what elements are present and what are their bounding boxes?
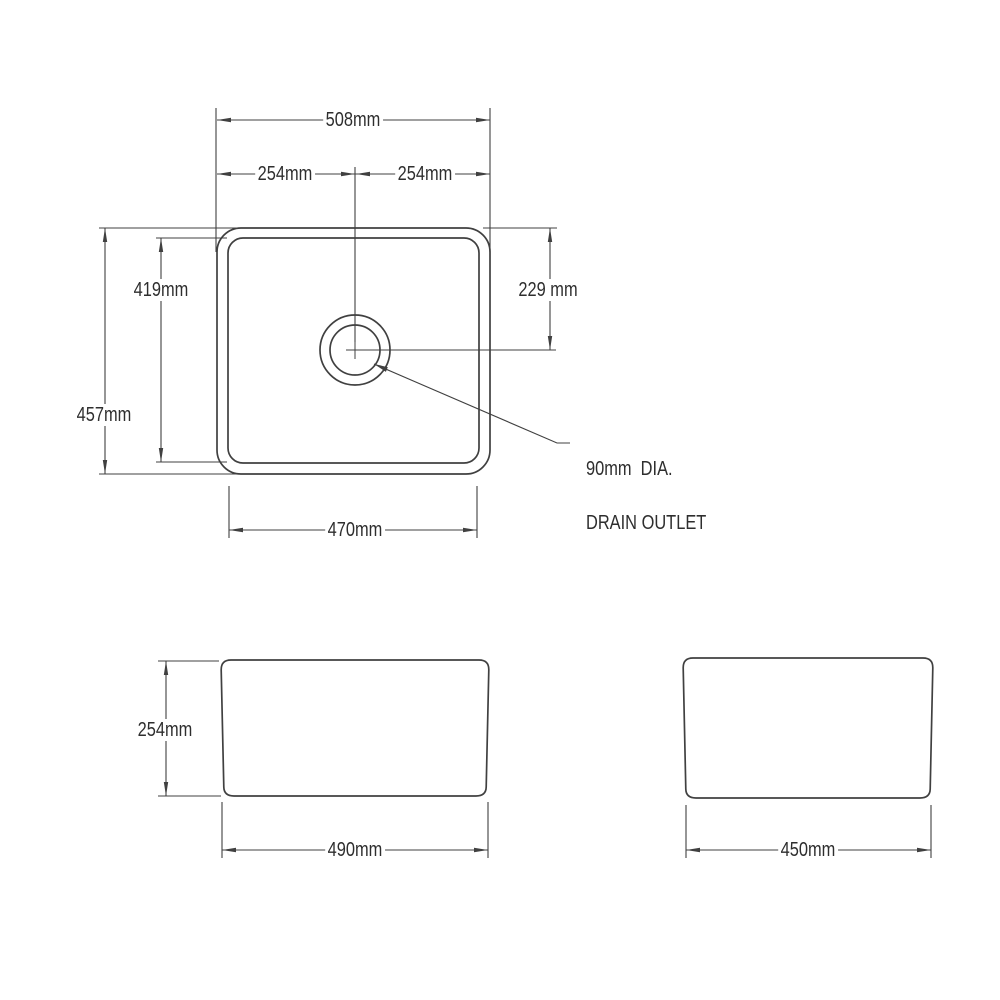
drain-outlet-note: 90mm DIA. DRAIN OUTLET [586, 424, 706, 568]
front-view-arrowheads [164, 661, 488, 852]
dim-label-drain-offset: 229 mm [516, 279, 580, 301]
dim-label-bowl-width: 470mm [325, 519, 385, 541]
sink-outer-rim [217, 228, 490, 474]
drain-leader-line [374, 364, 570, 443]
dim-label-side-width: 450mm [778, 839, 838, 861]
drawing-linework [0, 0, 1000, 1000]
dim-label-overall-width: 508mm [323, 109, 383, 131]
dim-label-overall-depth: 457mm [74, 404, 134, 426]
dim-label-center-left: 254mm [255, 163, 315, 185]
top-view-arrowheads [103, 118, 552, 532]
dim-label-center-right: 254mm [395, 163, 455, 185]
side-view-linework [683, 658, 933, 858]
front-view-extension-lines [158, 661, 488, 858]
side-view-outline [683, 658, 933, 798]
drain-note-line1: 90mm DIA. [586, 460, 706, 478]
front-view-linework [158, 660, 489, 858]
dim-label-bowl-depth: 419mm [131, 279, 191, 301]
dim-label-front-width: 490mm [325, 839, 385, 861]
drain-note-line2: DRAIN OUTLET [586, 514, 706, 532]
technical-drawing: 508mm 254mm 254mm 419mm 457mm 229 mm 470… [0, 0, 1000, 1000]
drain-center-crosshair [346, 341, 364, 359]
dim-label-front-height: 254mm [135, 719, 195, 741]
front-view-outline [221, 660, 489, 796]
top-view-linework [99, 108, 570, 538]
